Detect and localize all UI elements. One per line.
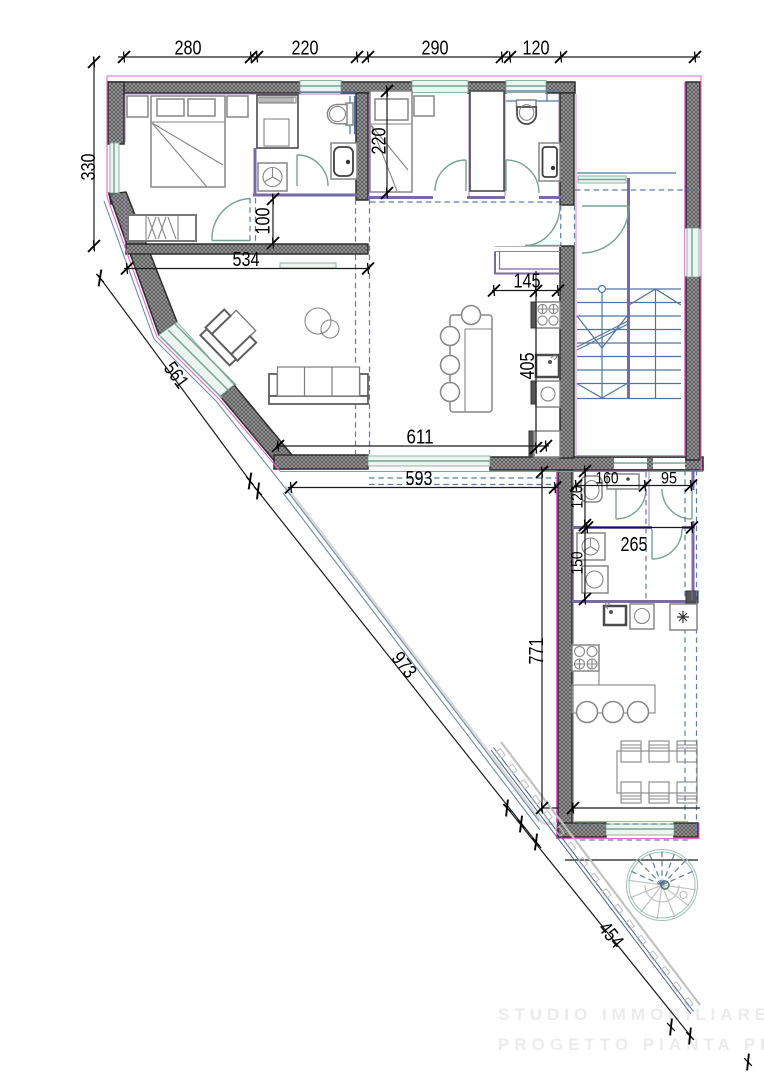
svg-text:160: 160 xyxy=(596,470,619,488)
svg-text:771: 771 xyxy=(526,638,548,665)
svg-text:290: 290 xyxy=(422,38,449,60)
svg-text:280: 280 xyxy=(175,38,202,60)
svg-text:STUDIO IMMOBILIARE RILIEVO: STUDIO IMMOBILIARE RILIEVO xyxy=(498,1005,764,1024)
svg-text:593: 593 xyxy=(406,468,433,490)
svg-text:220: 220 xyxy=(369,128,391,155)
svg-text:611: 611 xyxy=(407,427,434,449)
svg-text:265: 265 xyxy=(621,534,648,556)
svg-text:100: 100 xyxy=(253,208,275,235)
svg-text:95: 95 xyxy=(661,470,677,488)
svg-text:330: 330 xyxy=(78,154,100,181)
svg-text:PROGETTO PIANTA PIANO CASA: PROGETTO PIANTA PIANO CASA xyxy=(498,1035,764,1054)
svg-text:534: 534 xyxy=(233,249,260,271)
svg-text:120: 120 xyxy=(569,486,587,509)
svg-text:150: 150 xyxy=(569,552,587,575)
svg-text:120: 120 xyxy=(523,38,550,60)
svg-text:405: 405 xyxy=(517,353,539,380)
svg-text:220: 220 xyxy=(292,38,319,60)
